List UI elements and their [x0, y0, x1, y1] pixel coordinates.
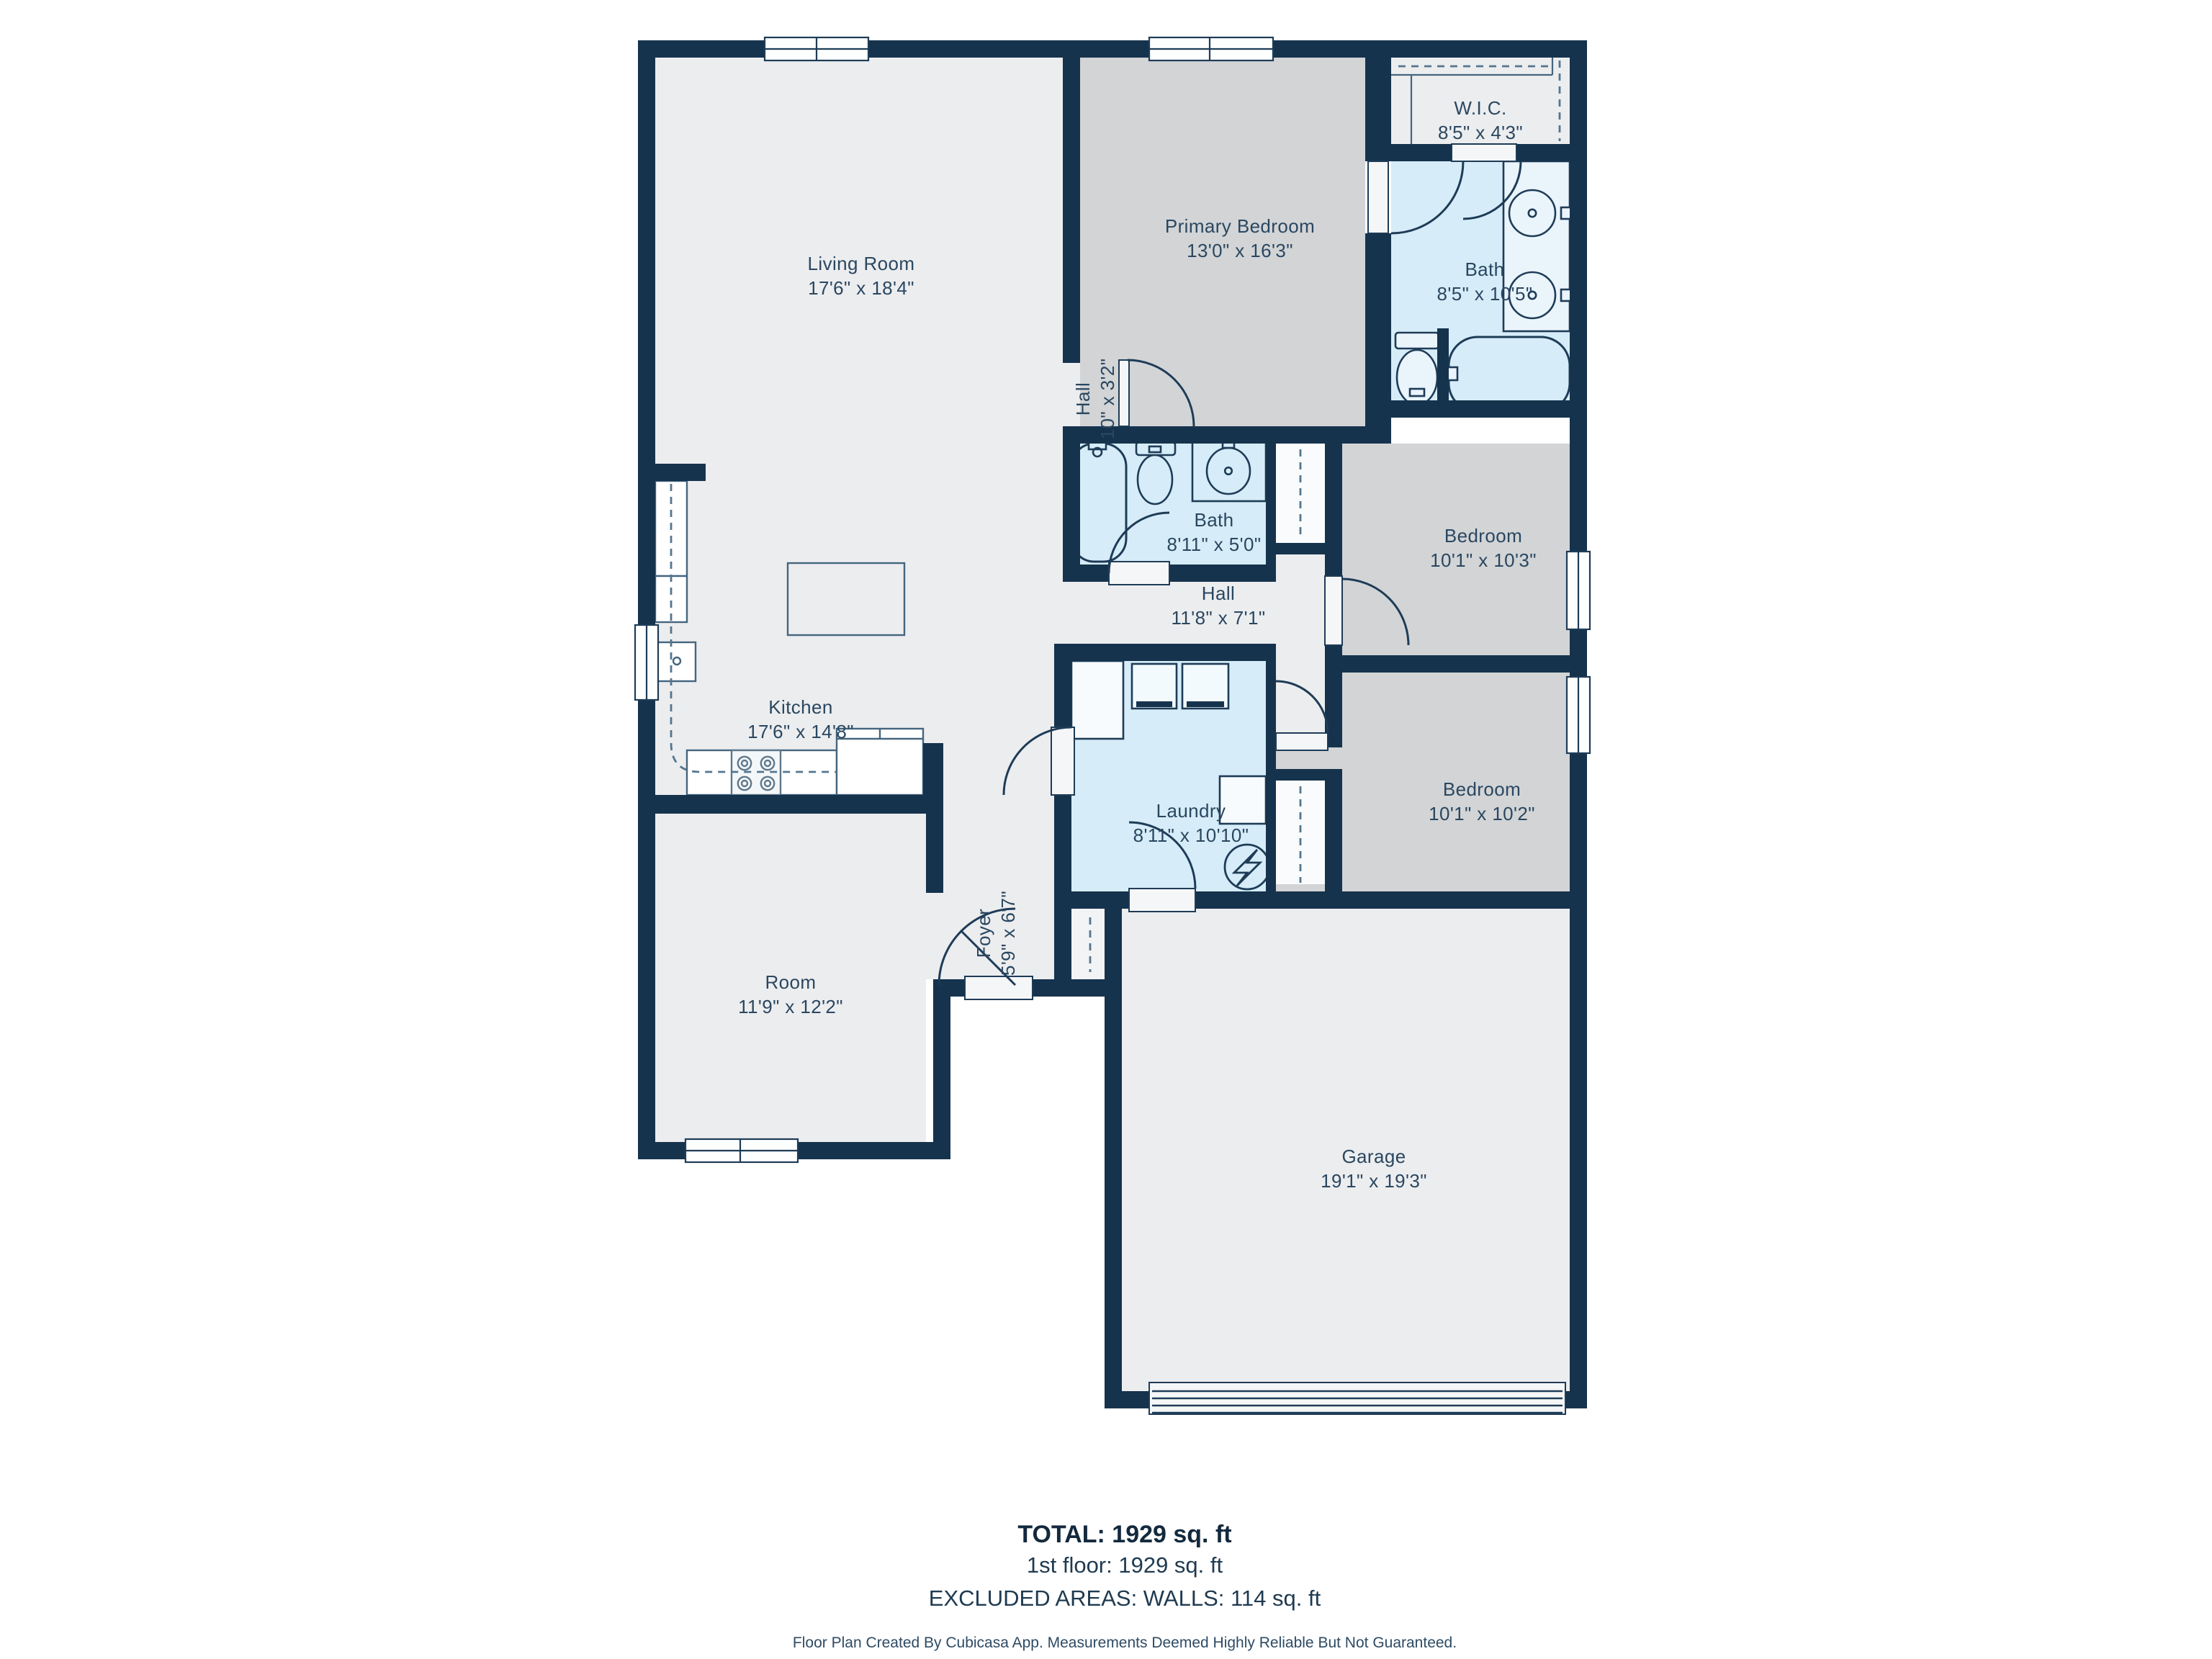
room-dims: 17'6" x 18'4" — [808, 276, 915, 300]
room-dims: 17'6" x 14'8" — [747, 720, 854, 744]
room-label-room: Room 11'9" x 12'2" — [738, 971, 843, 1019]
room-dims: 11'8" x 7'1" — [1171, 606, 1265, 630]
room-dims: 19'1" x 19'3" — [1321, 1169, 1427, 1193]
wall-wic-bottom-a — [1365, 144, 1452, 161]
room-name: Foyer — [973, 891, 997, 976]
wall-foyer-bottom-b — [1033, 979, 1122, 997]
room-name: Bath — [1437, 258, 1533, 282]
wall-tub-stub — [1437, 328, 1449, 418]
floor-plan-page: Living Room 17'6" x 18'4" Kitchen 17'6" … — [0, 0, 2212, 1659]
window-kitchen-left — [635, 625, 658, 700]
wall-left — [638, 40, 655, 1159]
toilet-icon — [1395, 333, 1439, 405]
washer-icon — [1132, 664, 1177, 709]
room-name: Hall — [1072, 359, 1096, 440]
room-name: Bedroom — [1429, 778, 1535, 802]
room-label-wic: W.I.C. 8'5" x 4'3" — [1438, 97, 1523, 145]
garage-entry-door-sill — [1129, 889, 1195, 912]
room-label-garage: Garage 19'1" x 19'3" — [1321, 1146, 1427, 1193]
wall-laundry-left-a — [1054, 644, 1071, 727]
hall-bath-door-sill — [1109, 562, 1169, 585]
room-label-bedroom1: Bedroom 10'1" x 10'3" — [1430, 525, 1537, 572]
wall-primary-bath-left — [1365, 233, 1391, 400]
room-label-primary-bath: Bath 8'5" x 10'5" — [1437, 258, 1533, 306]
room-label-primary-bedroom: Primary Bedroom 13'0" x 16'3" — [1165, 215, 1315, 263]
room-name: Bath — [1166, 509, 1261, 533]
room-dims: 13'0" x 16'3" — [1165, 239, 1315, 263]
room-label-kitchen: Kitchen 17'6" x 14'8" — [747, 696, 854, 744]
floor-plan-stage: Living Room 17'6" x 18'4" Kitchen 17'6" … — [0, 0, 2212, 1659]
room-name: Primary Bedroom — [1165, 215, 1315, 239]
room-label-bedroom2: Bedroom 10'1" x 10'2" — [1429, 778, 1535, 826]
entry-door-sill — [965, 976, 1033, 999]
total-area-text: TOTAL: 1929 sq. ft — [793, 1518, 1457, 1551]
wall-primary-bath-bottom — [1365, 400, 1587, 418]
wall-counter-corner — [923, 743, 943, 795]
room-label-hall: Hall 11'8" x 7'1" — [1171, 583, 1265, 630]
room-name: Kitchen — [747, 696, 854, 720]
room-name: Living Room — [808, 253, 915, 276]
bedroom1-door-sill — [1325, 576, 1342, 645]
wall-bedroom1-left-a — [1325, 426, 1342, 579]
room-name: Laundry — [1133, 800, 1249, 824]
wall-kitchen-stub — [638, 464, 706, 481]
window-room-bottom — [685, 1139, 798, 1162]
toilet-icon — [1136, 442, 1175, 504]
bedroom2-door-sill — [1276, 733, 1328, 750]
room-name: Garage — [1321, 1146, 1427, 1169]
laundry-closet — [1071, 661, 1123, 739]
wall-hall-bath-bottom-b — [1169, 565, 1276, 582]
wall-bedroom1-left-b — [1325, 645, 1342, 655]
wall-kitchen-bottom — [638, 795, 943, 814]
room-dims: 8'5" x 4'3" — [1438, 121, 1523, 145]
summary-block: TOTAL: 1929 sq. ft 1st floor: 1929 sq. f… — [793, 1518, 1457, 1652]
wall-living-primary — [1063, 40, 1080, 363]
wall-laundry-right — [1266, 644, 1276, 891]
primary-door-leaf — [1119, 360, 1129, 426]
excluded-areas-text: EXCLUDED AREAS: WALLS: 114 sq. ft — [793, 1583, 1457, 1616]
wall-hall-bottom — [1054, 644, 1266, 661]
room-label-living-room: Living Room 17'6" x 18'4" — [808, 253, 915, 300]
wall-laundry-bottom-b — [1195, 891, 1587, 909]
window-bedroom1-right — [1567, 552, 1590, 629]
wall-bedroom2-closet-right — [1325, 769, 1342, 891]
wic-door-sill — [1452, 144, 1516, 161]
mini-hall-floor — [1276, 644, 1325, 736]
disclaimer-text: Floor Plan Created By Cubicasa App. Meas… — [793, 1635, 1457, 1652]
fridge-icon — [657, 642, 696, 681]
room-label-laundry: Laundry 8'11" x 10'10" — [1133, 800, 1249, 848]
room-label-foyer: Foyer 5'9" x 6'7" — [973, 891, 1020, 976]
wall-bedroom2-closet-top — [1276, 769, 1325, 781]
wall-bedroom2-door-jamb — [1328, 736, 1342, 747]
wall-wic-bottom-b — [1516, 144, 1587, 161]
room-dims: 11'9" x 12'2" — [738, 995, 843, 1019]
dryer-icon — [1182, 664, 1228, 709]
room-dims: 8'11" x 10'10" — [1133, 824, 1249, 848]
room-label-hall-bath: Bath 8'11" x 5'0" — [1166, 509, 1261, 557]
room-name: Hall — [1171, 583, 1265, 606]
living-kitchen-floor — [655, 58, 1063, 795]
room-dims: 8'5" x 10'5" — [1437, 282, 1533, 306]
laundry-door-sill — [1051, 727, 1074, 795]
room-dims: 10'1" x 10'3" — [1430, 549, 1537, 572]
garage-door — [1149, 1382, 1565, 1414]
wall-hall-bath-bottom-a — [1063, 565, 1109, 582]
wall-bedroom-divider — [1325, 655, 1570, 673]
wall-laundry-left-b — [1054, 795, 1071, 979]
room-name: W.I.C. — [1438, 97, 1523, 121]
floor-plan-drawing — [0, 0, 2212, 1659]
window-primary-top — [1149, 37, 1273, 60]
wall-linen-closet-bottom — [1266, 543, 1325, 554]
primary-bath-door-leaf — [1368, 161, 1388, 233]
room-dims: 10'1" x 10'2" — [1429, 802, 1535, 826]
room-dims: 8'11" x 5'0" — [1166, 533, 1261, 557]
room-dims: 5'9" x 6'7" — [997, 891, 1020, 976]
foyer-closet-floor — [1071, 909, 1105, 979]
room-name: Room — [738, 971, 843, 995]
first-floor-area-text: 1st floor: 1929 sq. ft — [793, 1551, 1457, 1583]
window-living-top — [765, 37, 868, 60]
wall-room-right — [933, 979, 950, 1159]
room-dims: 10" x 3'2" — [1096, 359, 1120, 440]
wall-laundry-bottom-a — [1054, 891, 1129, 909]
room-label-hall-small: Hall 10" x 3'2" — [1072, 359, 1120, 440]
window-bedroom2-right — [1567, 677, 1590, 753]
room-name: Bedroom — [1430, 525, 1537, 549]
wall-hall-bath-right — [1266, 426, 1276, 582]
wall-hall-bath-left — [1063, 426, 1080, 582]
